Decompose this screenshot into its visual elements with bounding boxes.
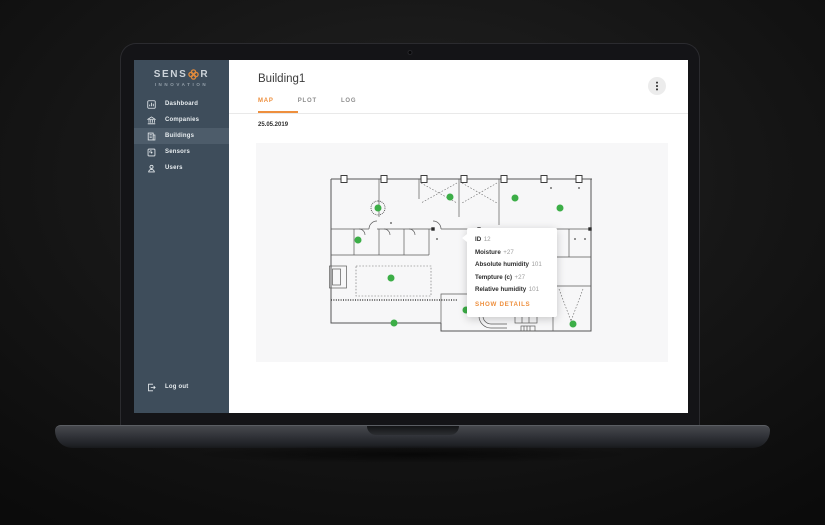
page-title: Building1 bbox=[258, 73, 305, 85]
bank-icon bbox=[147, 116, 156, 125]
sidebar-item-label: Buildings bbox=[165, 133, 194, 139]
sensor-marker[interactable] bbox=[512, 195, 519, 202]
sensor-marker[interactable] bbox=[557, 205, 564, 212]
sensor-marker-selected[interactable] bbox=[375, 205, 382, 212]
logo-text-right: R bbox=[200, 69, 209, 80]
tooltip-value: 12 bbox=[484, 236, 491, 243]
tooltip-label: Absolute humidity bbox=[475, 261, 529, 268]
app-logo: SENS R INNOVATION bbox=[134, 69, 229, 87]
tooltip-row: Moisture +27 bbox=[475, 249, 549, 256]
sensor-tooltip: ID 12 Moisture +27 Absolute humidity 101 bbox=[467, 228, 557, 317]
tooltip-value: +27 bbox=[515, 274, 526, 281]
kebab-menu-icon bbox=[656, 85, 658, 87]
tab-log[interactable]: LOG bbox=[341, 98, 356, 104]
sidebar-item-companies[interactable]: Companies bbox=[134, 112, 229, 128]
webcam-icon bbox=[409, 51, 412, 54]
sensor-icon bbox=[147, 148, 156, 157]
sidebar-item-label: Companies bbox=[165, 117, 199, 123]
more-options-button[interactable] bbox=[648, 77, 666, 95]
logo-subtitle: INNOVATION bbox=[134, 82, 229, 87]
main-content: Building1 MAP PLOT LOG 25.05.2019 bbox=[229, 60, 688, 413]
sidebar-item-label: Dashboard bbox=[165, 101, 198, 107]
logout-icon bbox=[147, 383, 156, 392]
tooltip-label: ID bbox=[475, 236, 481, 243]
sidebar-item-dashboard[interactable]: Dashboard bbox=[134, 96, 229, 112]
sensor-marker[interactable] bbox=[355, 237, 362, 244]
tab-plot[interactable]: PLOT bbox=[298, 98, 317, 104]
header-divider bbox=[229, 113, 688, 114]
floorplan-panel: ID 12 Moisture +27 Absolute humidity 101 bbox=[256, 143, 668, 362]
sidebar-item-users[interactable]: Users bbox=[134, 160, 229, 176]
laptop-notch bbox=[367, 426, 459, 435]
tab-bar: MAP PLOT LOG bbox=[258, 98, 356, 104]
logout-label: Log out bbox=[165, 384, 188, 390]
tooltip-value: 101 bbox=[529, 286, 539, 293]
sensor-marker[interactable] bbox=[388, 275, 395, 282]
tooltip-label: Relative humidity bbox=[475, 286, 526, 293]
sensor-marker[interactable] bbox=[391, 320, 398, 327]
tooltip-row: Tempture (c) +27 bbox=[475, 274, 549, 281]
sensor-marker[interactable] bbox=[570, 321, 577, 328]
tooltip-value: 101 bbox=[531, 261, 541, 268]
sidebar-item-buildings[interactable]: Buildings bbox=[134, 128, 229, 144]
logout-button[interactable]: Log out bbox=[134, 379, 229, 395]
sidebar: SENS R INNOVATION bbox=[134, 60, 229, 413]
sidebar-item-sensors[interactable]: Sensors bbox=[134, 144, 229, 160]
tooltip-label: Moisture bbox=[475, 249, 501, 256]
date-label: 25.05.2019 bbox=[258, 122, 288, 128]
building-icon bbox=[147, 132, 156, 141]
sensor-marker[interactable] bbox=[447, 194, 454, 201]
tooltip-row: ID 12 bbox=[475, 236, 549, 243]
laptop-screen: SENS R INNOVATION bbox=[120, 43, 700, 425]
app-window: SENS R INNOVATION bbox=[134, 60, 688, 413]
tooltip-value: +27 bbox=[503, 249, 514, 256]
dashboard-icon bbox=[147, 100, 156, 109]
user-icon bbox=[147, 164, 156, 173]
show-details-link[interactable]: SHOW DETAILS bbox=[475, 301, 549, 308]
floorplan: ID 12 Moisture +27 Absolute humidity 101 bbox=[329, 173, 594, 336]
sidebar-menu: Dashboard Companies Bu bbox=[134, 96, 229, 176]
sidebar-item-label: Users bbox=[165, 165, 183, 171]
sidebar-item-label: Sensors bbox=[165, 149, 190, 155]
tooltip-row: Relative humidity 101 bbox=[475, 286, 549, 293]
logo-knot-icon bbox=[188, 69, 199, 80]
tooltip-row: Absolute humidity 101 bbox=[475, 261, 549, 268]
tooltip-label: Tempture (c) bbox=[475, 274, 512, 281]
laptop-shadow bbox=[95, 444, 730, 470]
tab-map[interactable]: MAP bbox=[258, 98, 274, 104]
logo-text-left: SENS bbox=[154, 69, 188, 80]
